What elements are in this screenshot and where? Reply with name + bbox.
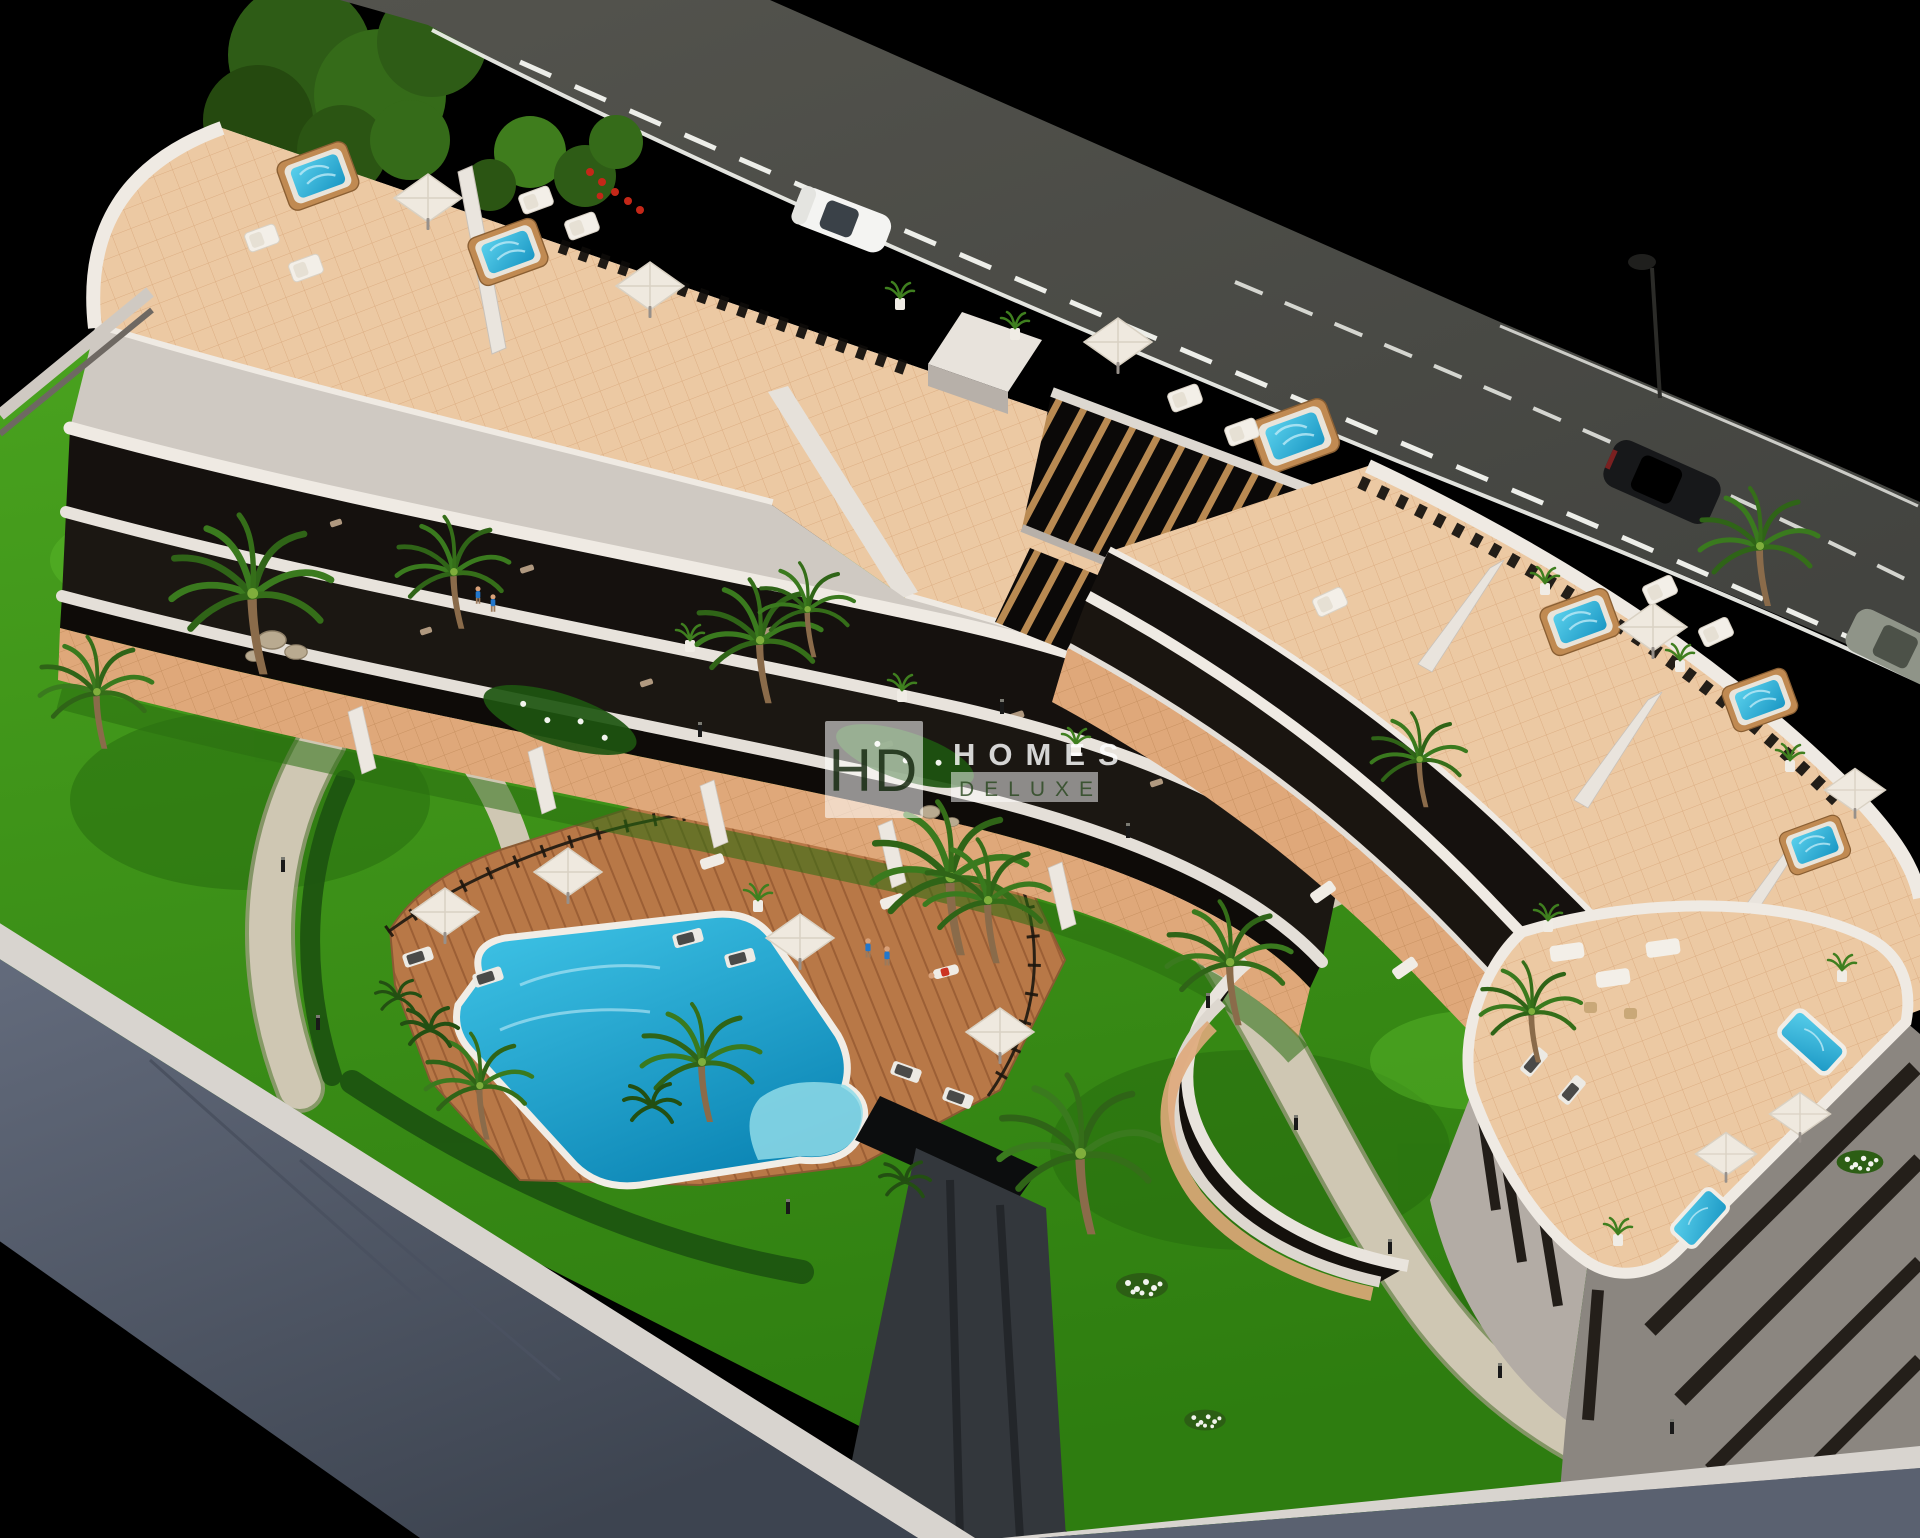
architectural-render: HD HOMES DELUXE [0, 0, 1920, 1538]
flower-bed [1837, 1150, 1884, 1173]
flower-bed [1184, 1410, 1226, 1431]
flower-bed [1116, 1273, 1168, 1299]
logo-wordmark-line2: DELUXE [959, 778, 1103, 801]
logo-monogram: HD [829, 737, 920, 804]
logo-wordmark-line1: HOMES [953, 737, 1132, 772]
